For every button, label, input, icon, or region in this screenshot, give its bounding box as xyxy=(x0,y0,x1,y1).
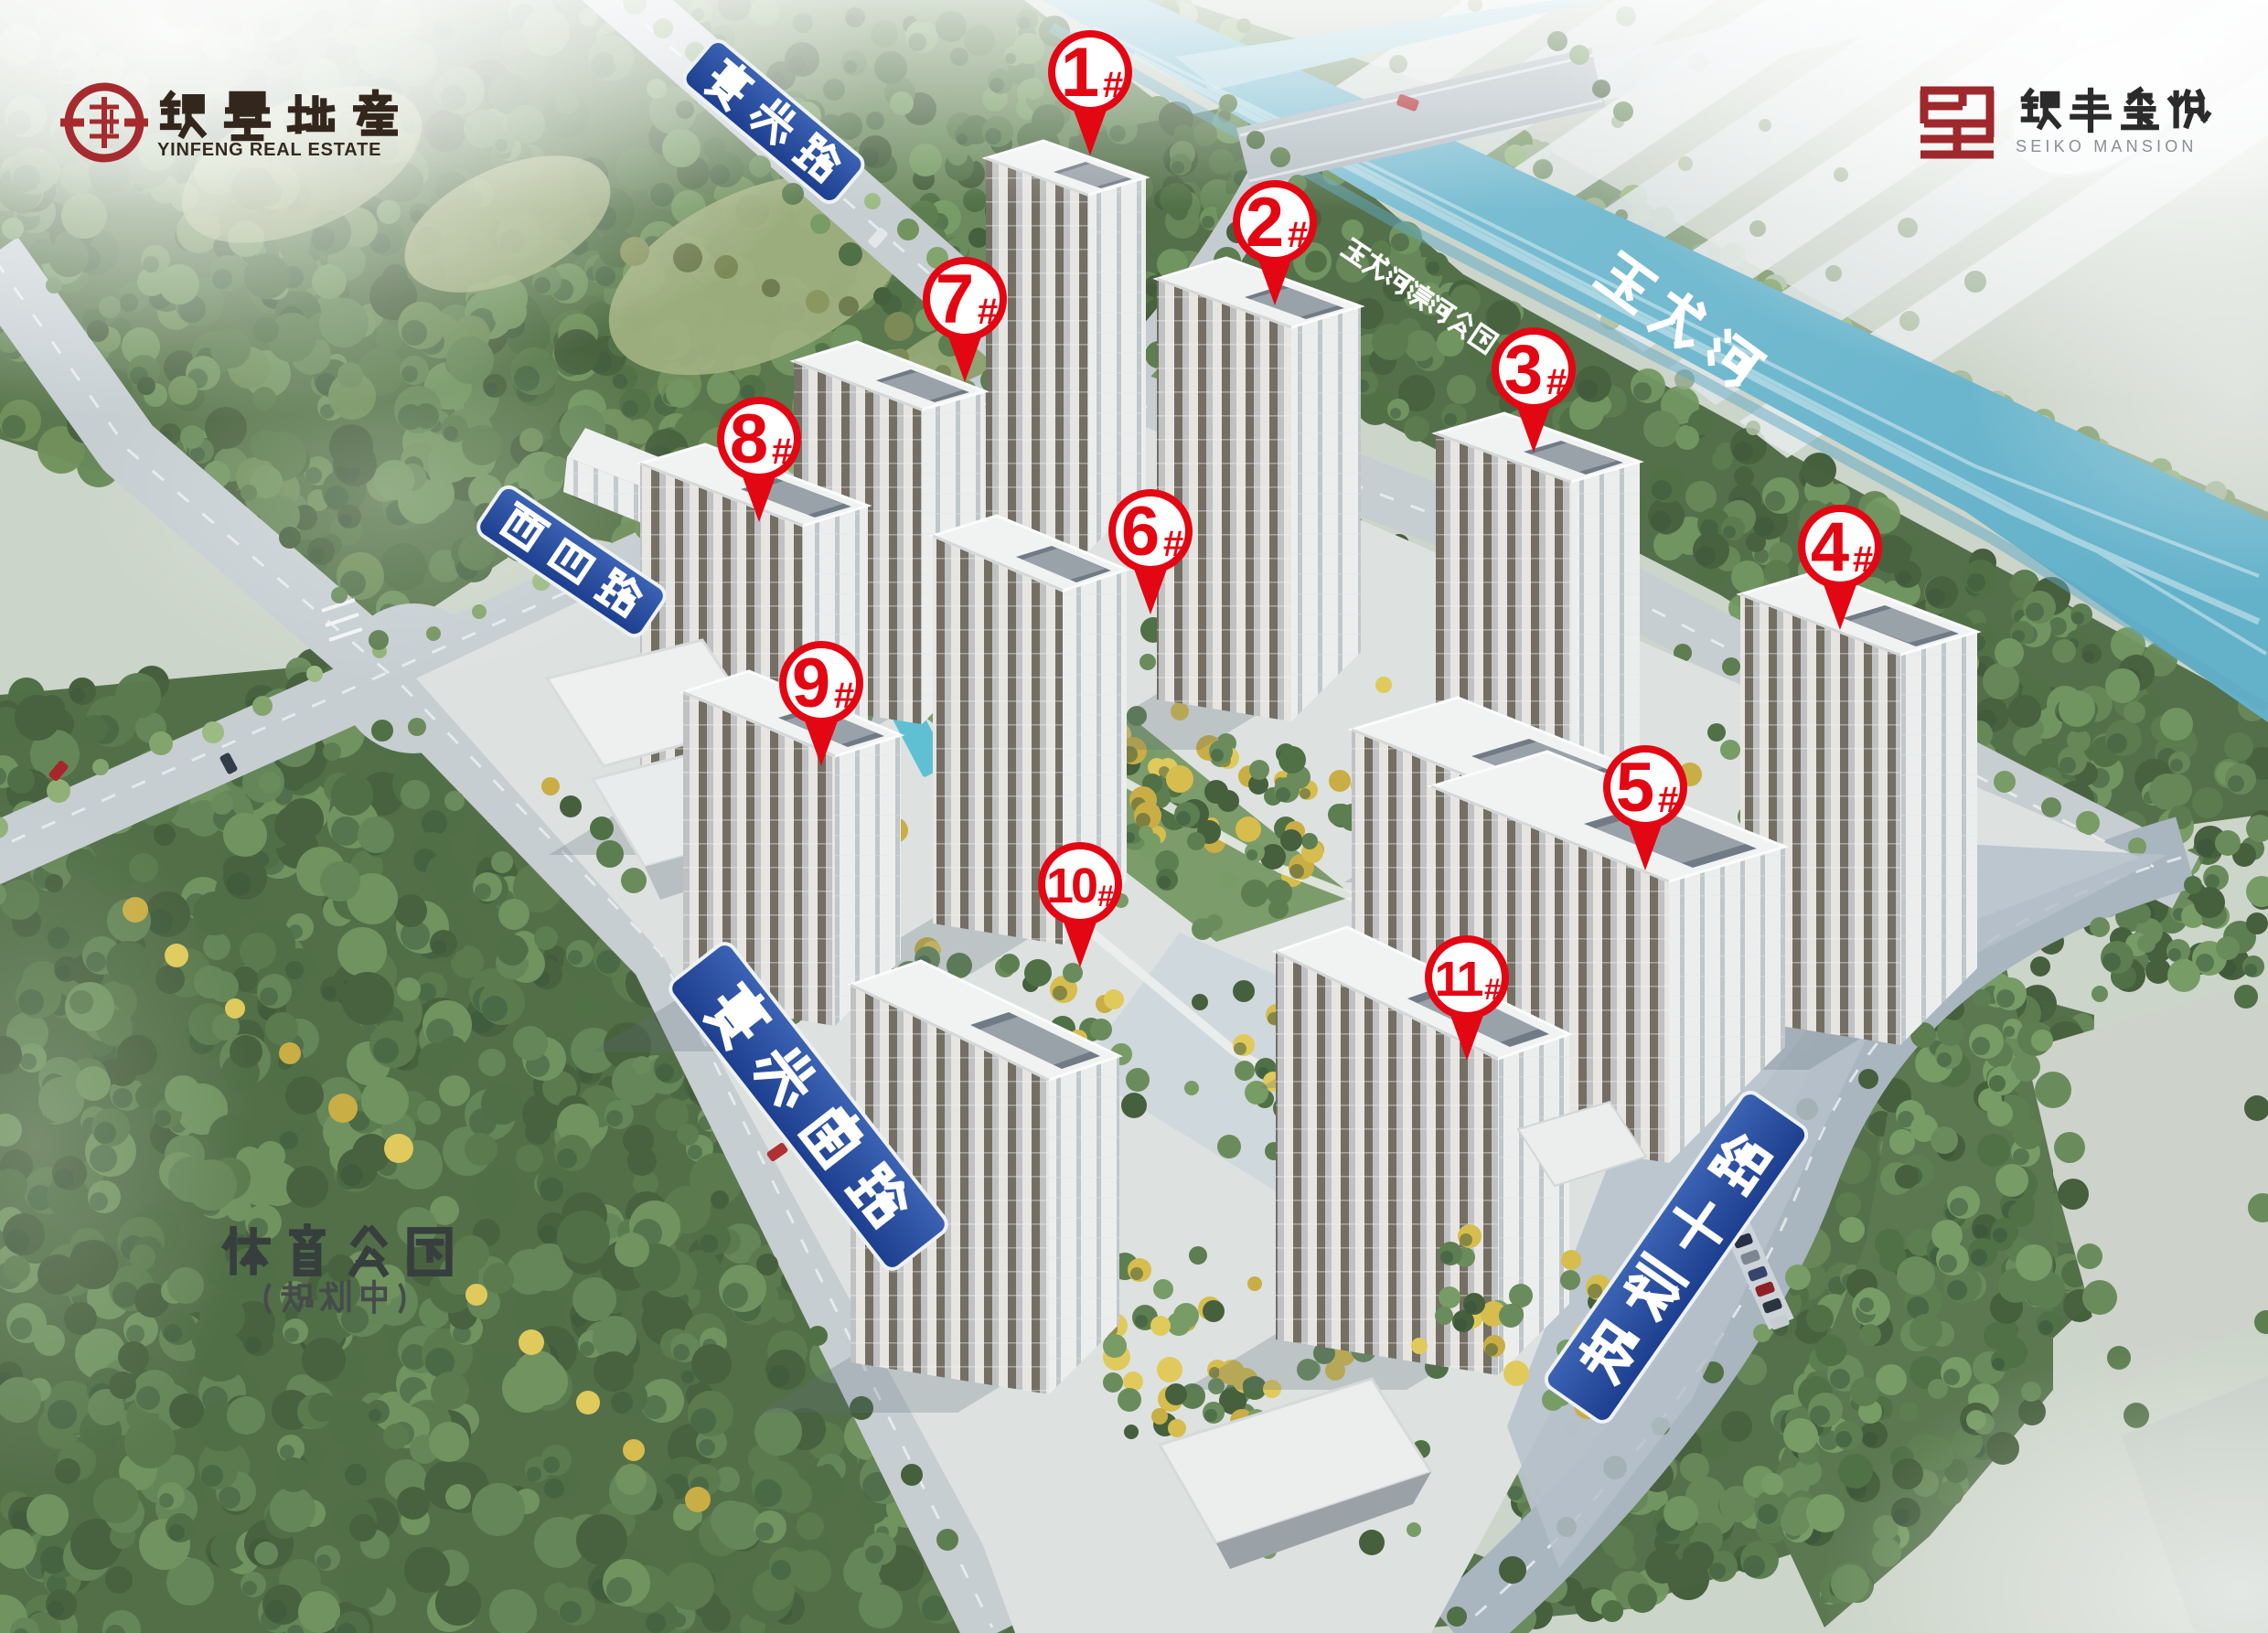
svg-text:YINFENG REAL ESTATE: YINFENG REAL ESTATE xyxy=(157,140,381,160)
svg-text:#: # xyxy=(1288,215,1308,255)
svg-text:#: # xyxy=(1853,539,1873,580)
svg-text:#: # xyxy=(1163,524,1183,564)
svg-text:1: 1 xyxy=(1061,34,1099,112)
svg-text:2: 2 xyxy=(1246,184,1284,261)
svg-text:4: 4 xyxy=(1811,508,1849,586)
svg-text:SEIKO MANSION: SEIKO MANSION xyxy=(2016,137,2198,155)
svg-text:#: # xyxy=(1546,362,1567,402)
svg-text:#: # xyxy=(772,432,792,472)
svg-text:#: # xyxy=(1658,780,1678,820)
svg-text:#: # xyxy=(1103,65,1123,105)
svg-text:11: 11 xyxy=(1434,952,1482,1007)
svg-text:#: # xyxy=(1097,880,1114,913)
svg-text:5: 5 xyxy=(1616,749,1654,827)
svg-text:#: # xyxy=(834,676,854,716)
svg-text:6: 6 xyxy=(1121,493,1160,571)
svg-text:10: 10 xyxy=(1046,859,1097,913)
svg-text:7: 7 xyxy=(936,261,974,338)
svg-text:#: # xyxy=(978,292,998,332)
svg-text:3: 3 xyxy=(1504,331,1543,409)
svg-text:#: # xyxy=(1484,973,1501,1006)
svg-text:9: 9 xyxy=(792,645,830,722)
svg-text:8: 8 xyxy=(730,400,768,478)
